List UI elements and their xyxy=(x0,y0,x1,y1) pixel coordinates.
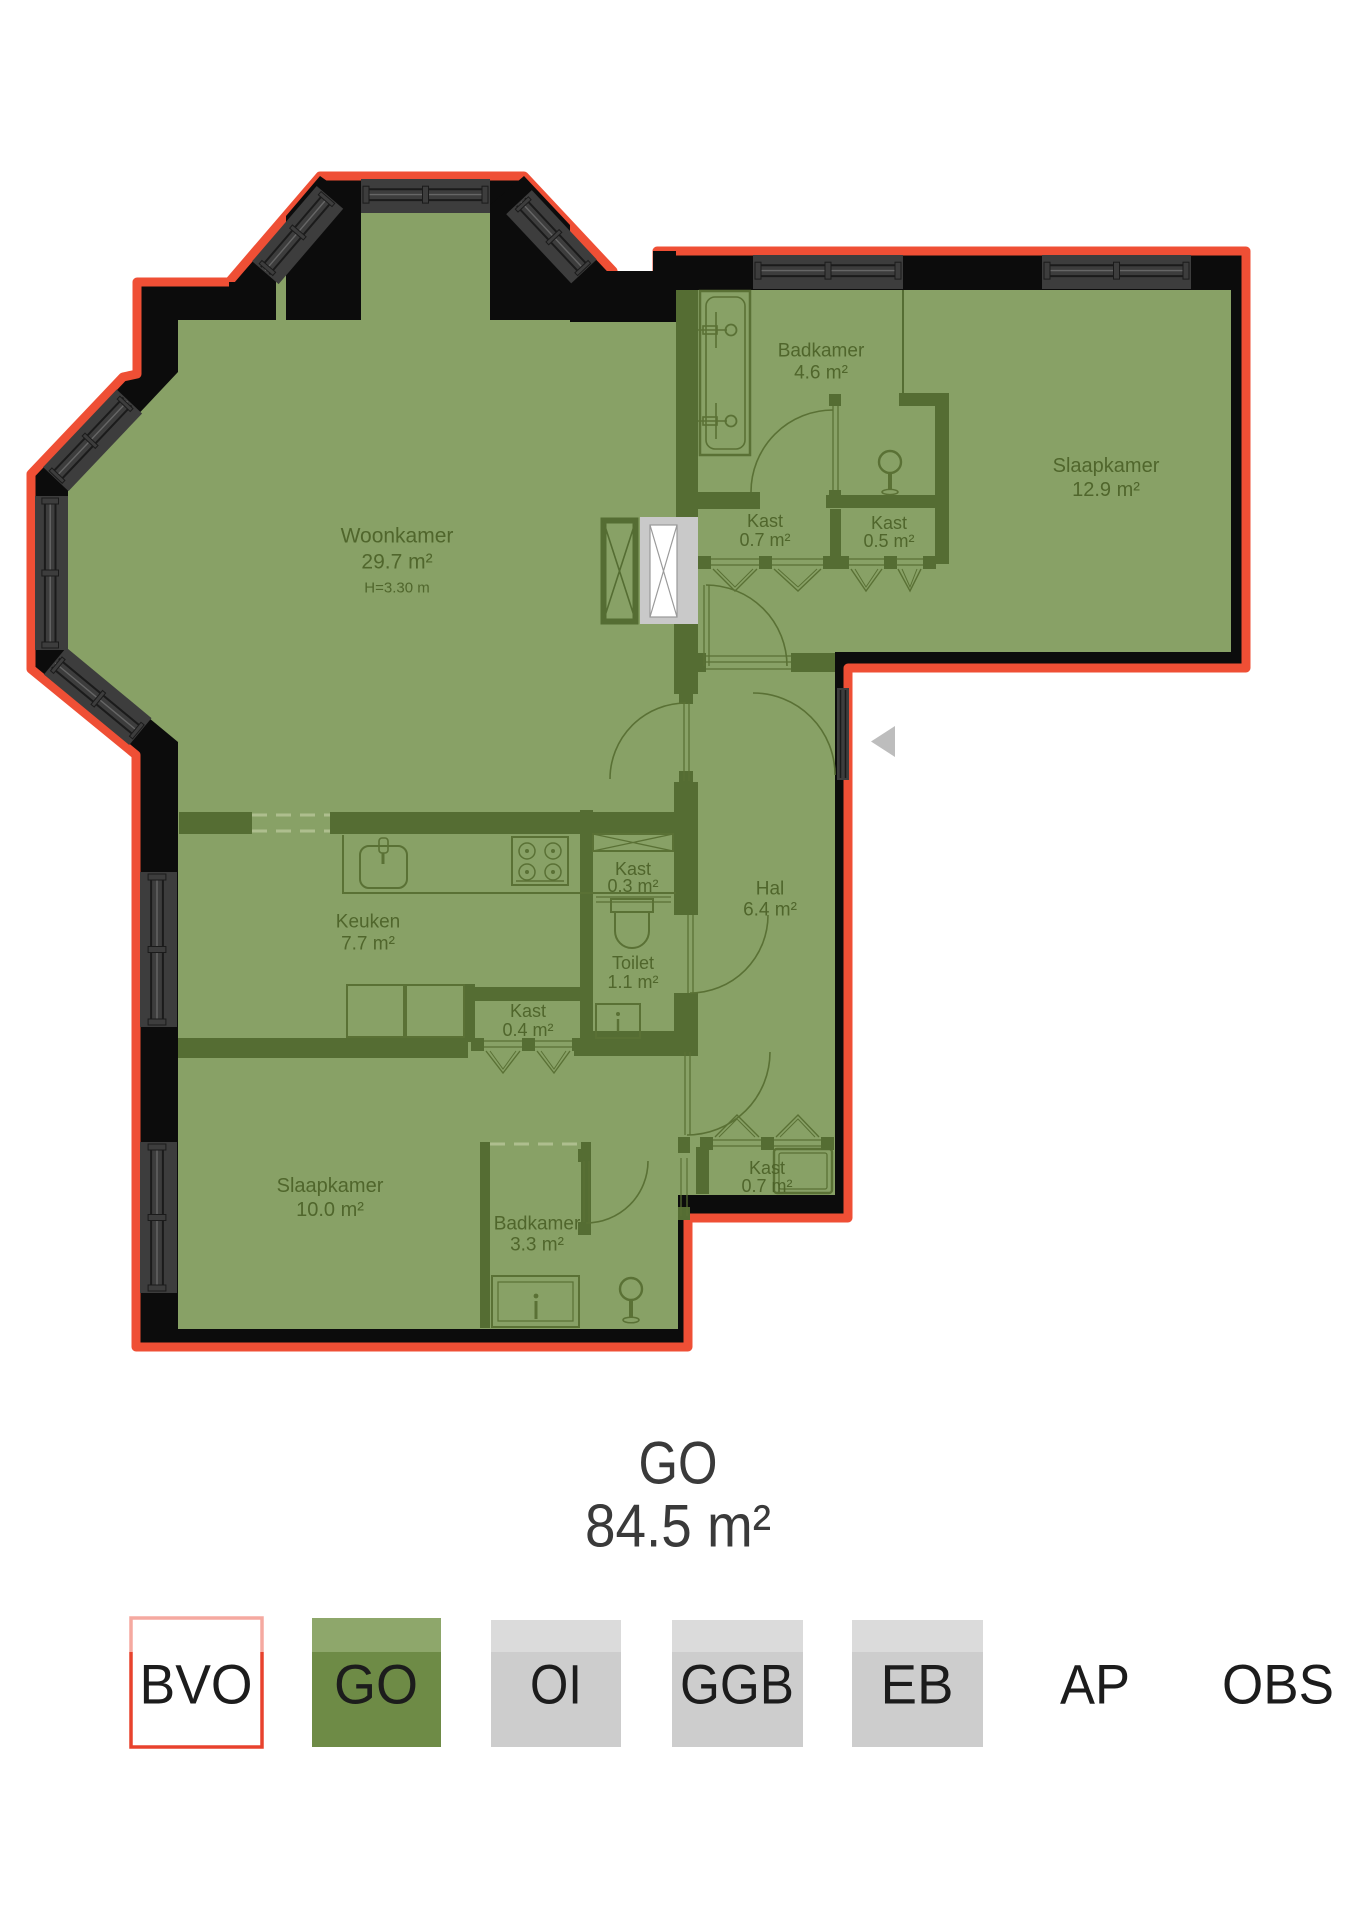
svg-text:GO: GO xyxy=(334,1653,418,1716)
svg-text:12.9 m²: 12.9 m² xyxy=(1072,479,1140,501)
svg-text:Kast: Kast xyxy=(510,1001,546,1021)
svg-text:AP: AP xyxy=(1060,1653,1130,1716)
svg-text:4.6 m²: 4.6 m² xyxy=(794,363,848,384)
svg-text:0.7 m²: 0.7 m² xyxy=(741,1176,792,1196)
svg-text:Kast: Kast xyxy=(747,511,783,531)
svg-text:Slaapkamer: Slaapkamer xyxy=(1053,455,1160,477)
svg-text:Kast: Kast xyxy=(871,513,907,533)
svg-text:0.5 m²: 0.5 m² xyxy=(863,531,914,551)
svg-text:Woonkamer: Woonkamer xyxy=(341,525,454,548)
svg-text:0.3 m²: 0.3 m² xyxy=(607,876,658,896)
svg-text:Badkamer: Badkamer xyxy=(778,341,865,362)
svg-text:OBS: OBS xyxy=(1222,1653,1334,1716)
svg-text:OI: OI xyxy=(530,1653,582,1716)
svg-text:Slaapkamer: Slaapkamer xyxy=(277,1175,384,1197)
svg-text:H=3.30 m: H=3.30 m xyxy=(364,580,429,597)
svg-text:0.4 m²: 0.4 m² xyxy=(502,1020,553,1040)
svg-text:Keuken: Keuken xyxy=(336,912,400,933)
svg-text:Hal: Hal xyxy=(756,879,785,900)
svg-text:Kast: Kast xyxy=(749,1158,785,1178)
svg-text:Toilet: Toilet xyxy=(612,953,654,973)
svg-text:6.4 m²: 6.4 m² xyxy=(743,900,797,921)
svg-text:29.7 m²: 29.7 m² xyxy=(361,551,432,574)
svg-text:GO: GO xyxy=(639,1430,718,1497)
svg-text:GGB: GGB xyxy=(680,1653,794,1716)
svg-text:10.0 m²: 10.0 m² xyxy=(296,1199,364,1221)
svg-text:EB: EB xyxy=(881,1653,954,1716)
svg-text:1.1 m²: 1.1 m² xyxy=(607,972,658,992)
svg-text:7.7 m²: 7.7 m² xyxy=(341,934,395,955)
svg-text:3.3 m²: 3.3 m² xyxy=(510,1235,564,1256)
svg-text:84.5 m²: 84.5 m² xyxy=(585,1493,771,1560)
svg-text:0.7 m²: 0.7 m² xyxy=(739,530,790,550)
svg-text:Badkamer: Badkamer xyxy=(494,1214,581,1235)
svg-text:BVO: BVO xyxy=(140,1653,253,1716)
